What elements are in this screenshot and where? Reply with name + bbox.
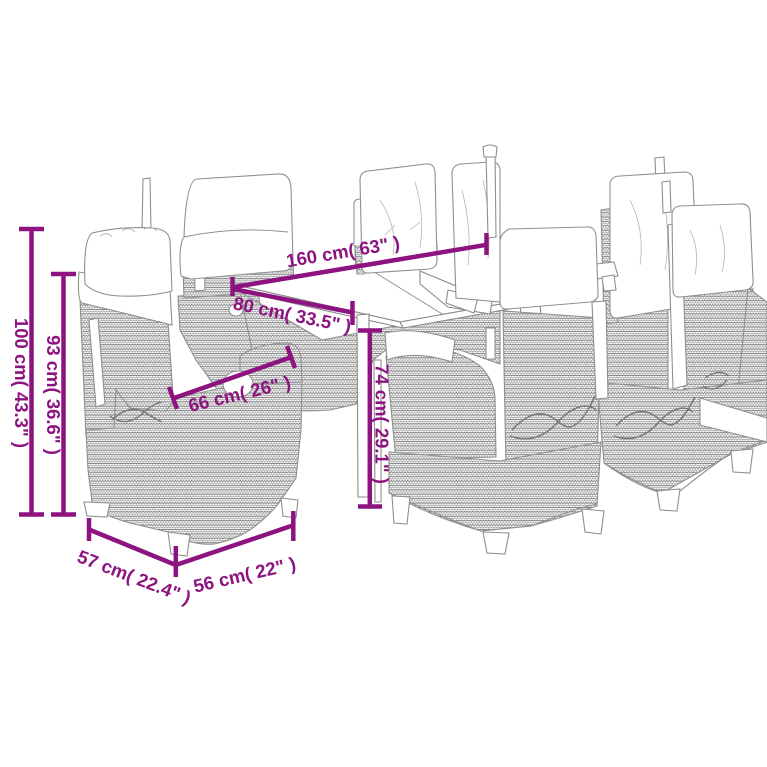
svg-text:74 cm( 29.1" ): 74 cm( 29.1" ) <box>372 364 393 484</box>
svg-text:93 cm( 36.6" ): 93 cm( 36.6" ) <box>43 335 64 455</box>
svg-text:100 cm( 43.3" ): 100 cm( 43.3" ) <box>11 318 32 448</box>
